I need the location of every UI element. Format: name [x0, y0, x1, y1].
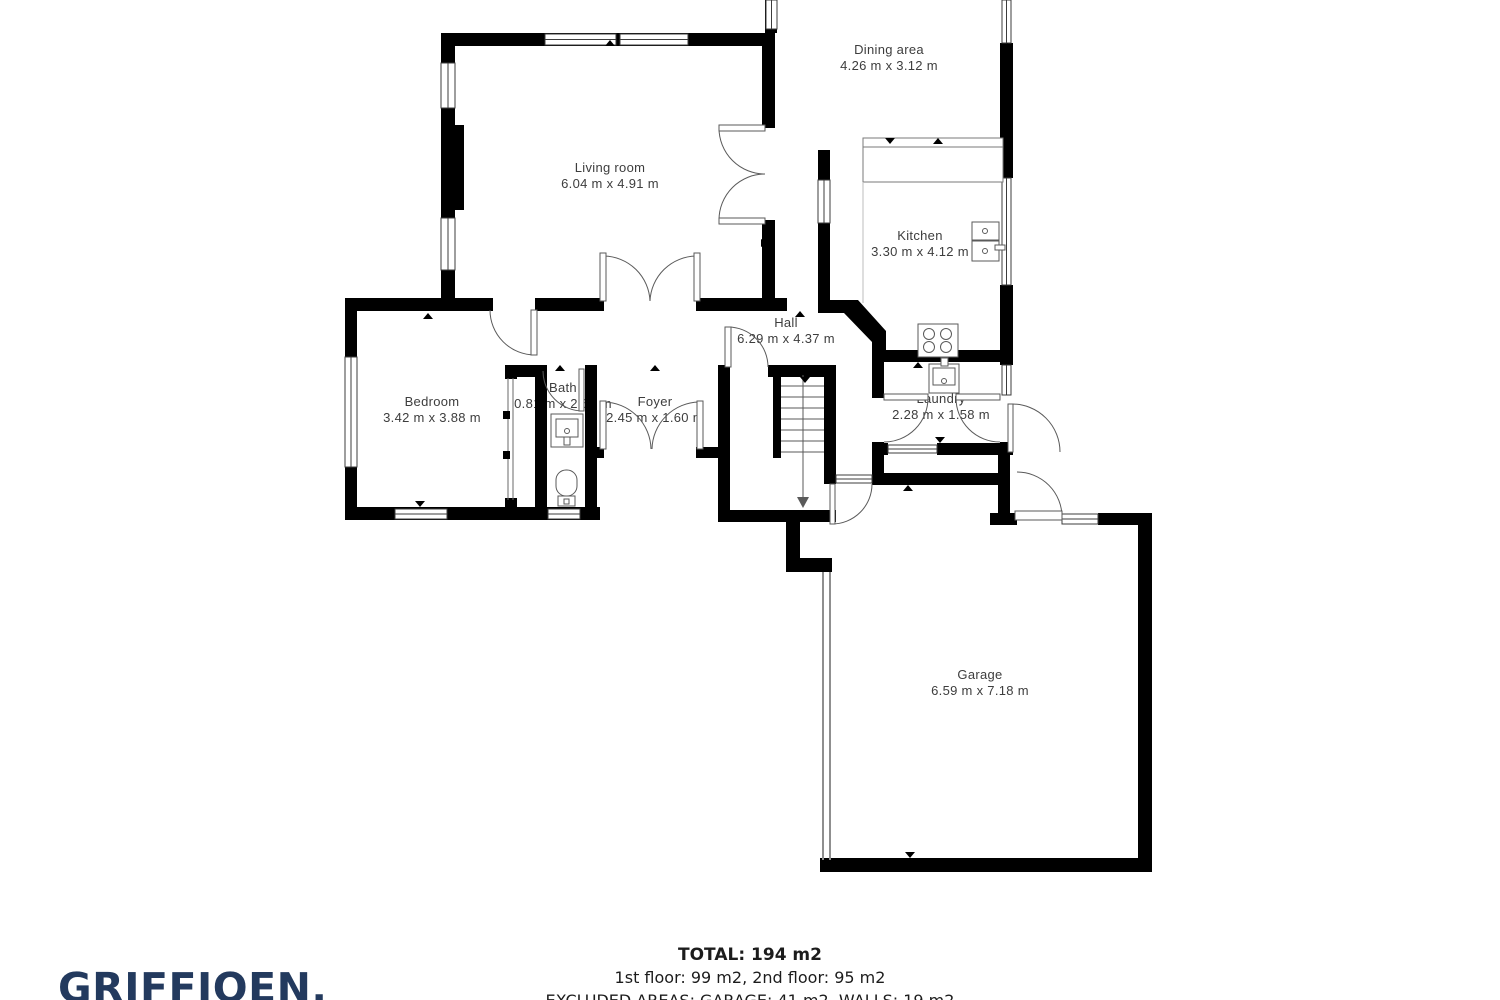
laundry-west-door-icon: [884, 394, 928, 442]
bath-door-icon: [543, 369, 584, 411]
foyer-entry-double-door-icon: [600, 401, 703, 449]
tick-laundry-bottom: [935, 437, 945, 443]
total-area-text: TOTAL: 194 m2: [0, 945, 1500, 965]
tick-bedroom-bottom: [415, 501, 425, 507]
door-layer: [490, 125, 1062, 524]
tick-bath-door: [555, 365, 565, 371]
understairs-closet-door-icon: [725, 327, 768, 367]
laundry-east-door-icon: [956, 394, 1000, 442]
tick-hall-opening: [795, 311, 805, 317]
bath-sink-icon: [551, 414, 583, 447]
floor-plan-svg: [0, 0, 1500, 1000]
tick-stairs-top: [800, 377, 810, 383]
laundry-sink-icon: [929, 358, 959, 393]
tick-bedroom-top: [423, 313, 433, 319]
agency-logo: GRIFFIOEN.: [58, 964, 328, 1000]
kitchen-counter-icon: [863, 138, 1003, 303]
garage-door-wall: [823, 572, 830, 860]
exterior-east-door-icon: [1008, 404, 1060, 452]
cooktop-icon: [918, 324, 958, 357]
staircase: [781, 375, 824, 508]
garage-north-door-icon: [1015, 472, 1062, 520]
living-room-south-double-door-icon: [600, 253, 700, 301]
floor-plan-page: Living room 6.04 m x 4.91 m Dining area …: [0, 0, 1500, 1000]
partition-layer: [503, 378, 513, 500]
toilet-icon: [556, 470, 577, 506]
tick-garage-bottom: [905, 852, 915, 858]
stairs-down-arrow-icon: [797, 497, 809, 508]
tick-garage-north: [903, 485, 913, 491]
tick-laundry-top: [913, 362, 923, 368]
tick-foyer-opening: [650, 365, 660, 371]
oven-stack-icon: [972, 222, 1005, 261]
living-room-east-double-door-icon: [719, 125, 765, 224]
bedroom-door-icon: [490, 310, 537, 355]
hall-to-garage-door-icon: [830, 484, 872, 524]
